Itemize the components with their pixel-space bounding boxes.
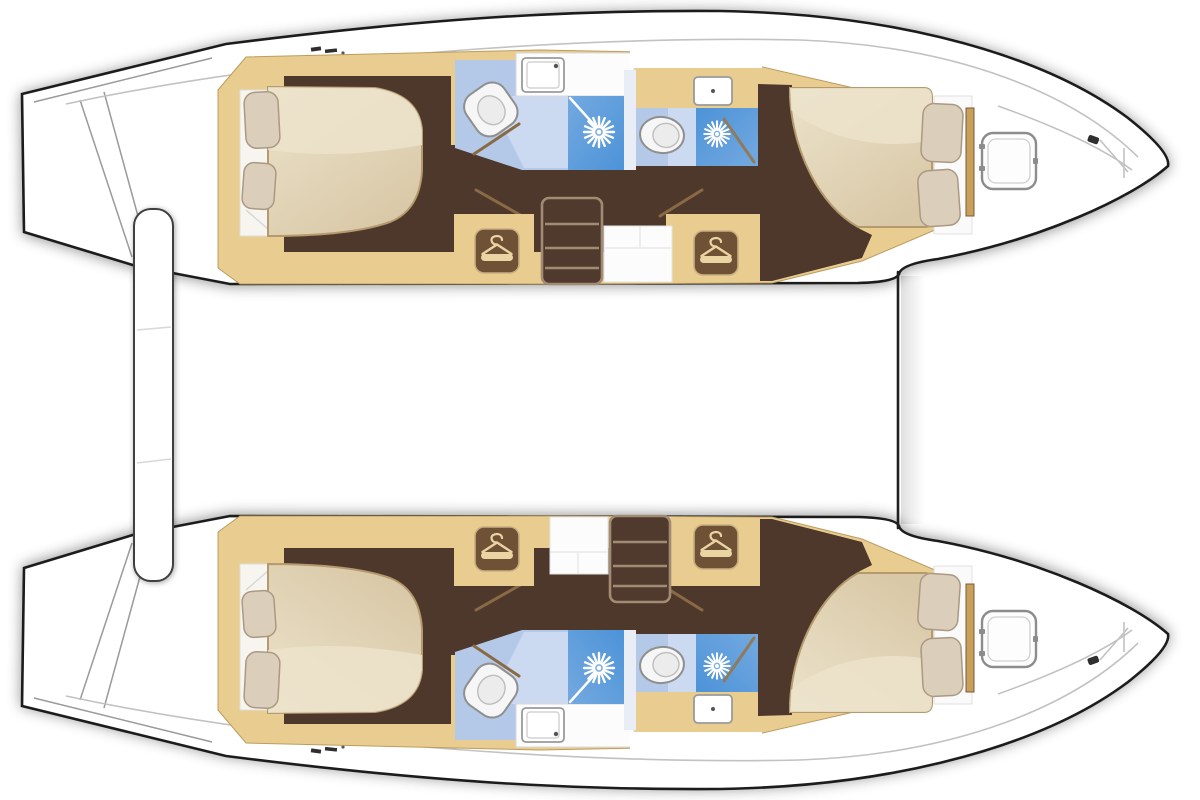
stair-landing: [604, 226, 672, 282]
hull-starboard: [22, 516, 1168, 789]
floor-plan-canvas: [0, 0, 1200, 800]
foredeck-crossbar: [898, 272, 925, 528]
aft-crossbeam-platform: [134, 209, 173, 581]
stair-landing: [550, 517, 608, 574]
hull-port: [22, 11, 1168, 284]
catamaran-floor-plan: [0, 0, 1200, 800]
